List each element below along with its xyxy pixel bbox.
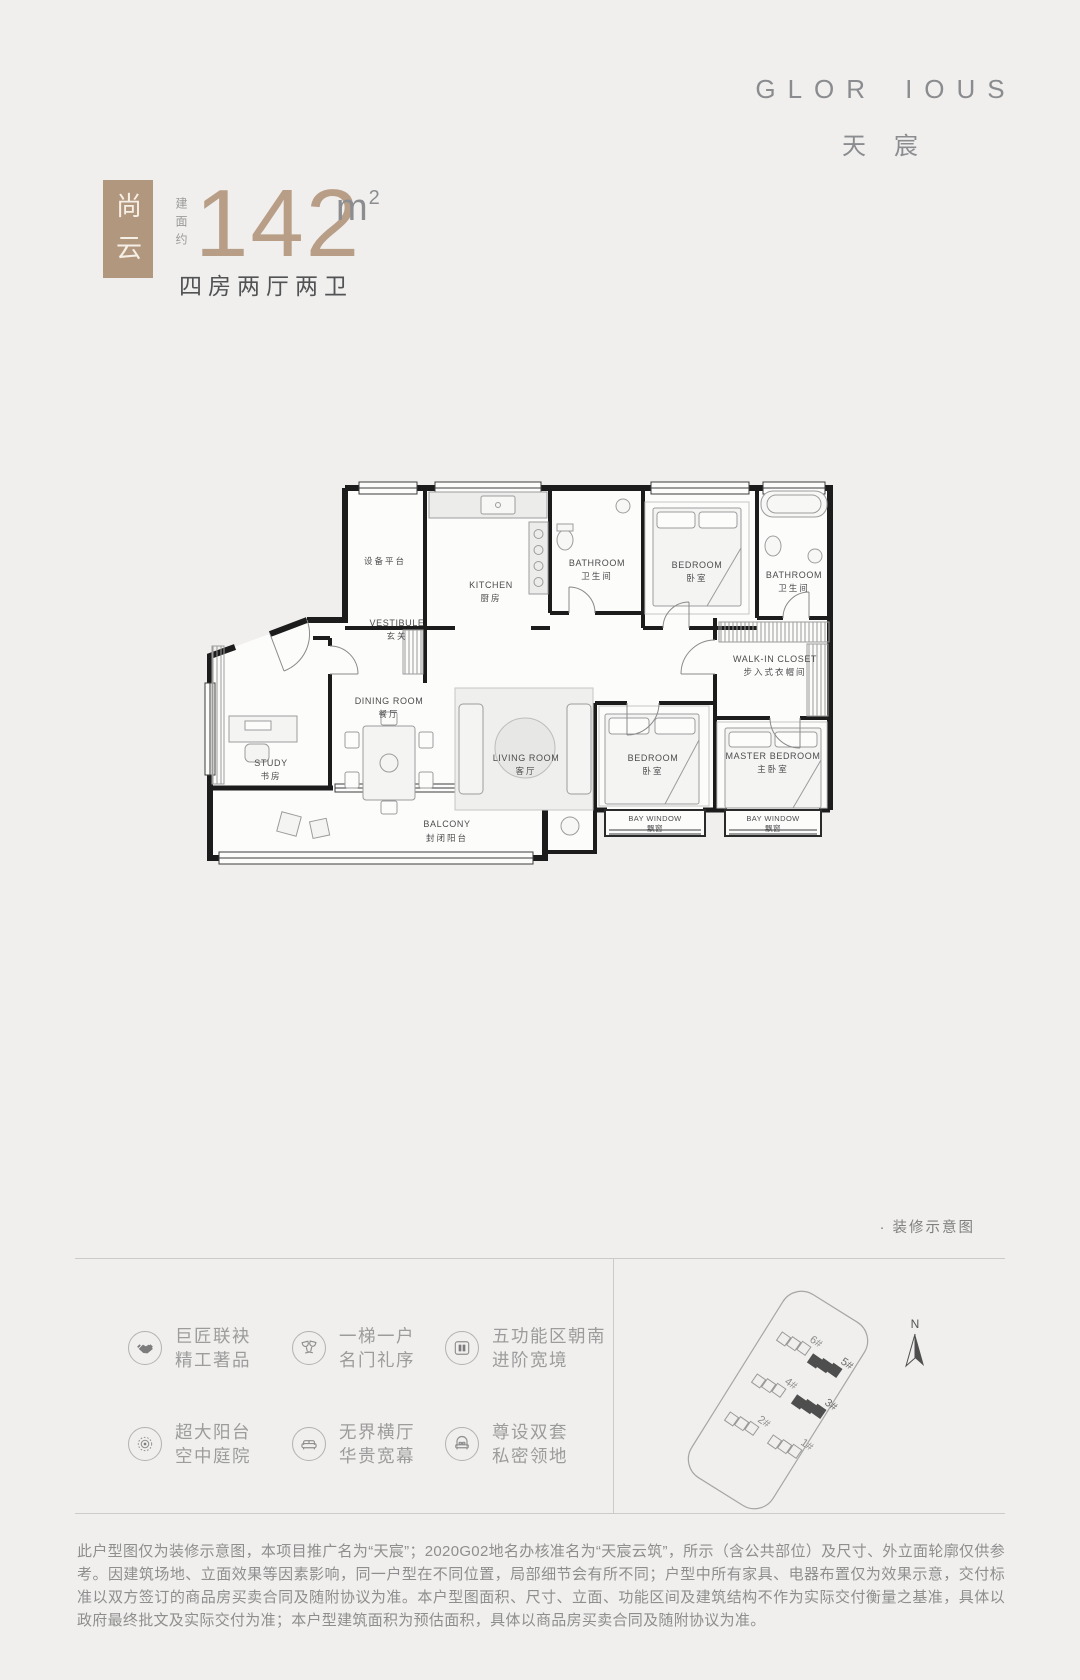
- decoration-note: · 装修示意图: [880, 1216, 975, 1237]
- feature-text: 五功能区朝南 进阶宽境: [492, 1324, 606, 1372]
- room-label-bedroom-north-en: BEDROOM: [672, 560, 723, 570]
- poster-page: GLOR IOUS 天宸 尚云 建面约 142 m2 四房两厅两卫: [0, 0, 1080, 1680]
- divider-vertical: [613, 1259, 614, 1513]
- room-label-living-en: LIVING ROOM: [493, 753, 560, 763]
- feature-one-elevator: 一梯一户 名门礼序: [292, 1324, 415, 1372]
- feature-text: 巨匠联袂 精工著品: [175, 1324, 251, 1372]
- feature-south-facing: 五功能区朝南 进阶宽境: [445, 1324, 606, 1372]
- unit-badge: 尚云: [103, 180, 153, 278]
- feature-craftsmanship: 巨匠联袂 精工著品: [128, 1324, 251, 1372]
- room-label-bathroom2-en: BATHROOM: [766, 570, 822, 580]
- room-label-bay1-en: BAY WINDOW: [628, 814, 682, 823]
- room-label-vestibule-en: VESTIBULE: [370, 618, 425, 628]
- room-label-bathroom1-en: BATHROOM: [569, 558, 625, 568]
- layout-description: 四房两厅两卫: [179, 267, 353, 301]
- divider-top: [75, 1258, 1005, 1259]
- room-label-balcony-en: BALCONY: [423, 819, 470, 829]
- site-building-3: 3#: [792, 1381, 840, 1426]
- floor-plan: 设备平台 VESTIBULE 玄关 KITCHEN 厨房 BATHROOM 卫生…: [195, 478, 835, 873]
- brand-logo: GLOR IOUS 天宸: [750, 66, 1010, 161]
- site-building-4: 4#: [752, 1360, 800, 1405]
- feature-text: 一梯一户 名门礼序: [339, 1324, 415, 1372]
- room-label-dining-en: DINING ROOM: [355, 696, 424, 706]
- feature-text: 超大阳台 空中庭院: [175, 1420, 251, 1468]
- site-building-1: 1#: [768, 1421, 816, 1466]
- sofa-icon: [292, 1427, 326, 1461]
- handshake-icon: [128, 1331, 162, 1365]
- room-label-bathroom2-cn: 卫生间: [778, 583, 810, 593]
- site-boundary: [680, 1283, 876, 1512]
- room-label-vestibule-cn: 玄关: [386, 631, 407, 641]
- feature-text: 无界横厅 华贵宽幕: [339, 1420, 415, 1468]
- room-label-study-cn: 书房: [260, 771, 281, 781]
- room-label-equipment: 设备平台: [364, 556, 406, 566]
- site-building-6: 6#: [777, 1318, 825, 1363]
- room-label-bay1-cn: 飘窗: [647, 823, 663, 833]
- feature-text: 尊设双套 私密领地: [492, 1420, 568, 1468]
- room-label-living-cn: 客厅: [515, 766, 536, 776]
- brand-subtitle: 天宸: [750, 126, 1010, 161]
- site-building-2: 2#: [725, 1398, 773, 1443]
- room-label-bay2-cn: 飘窗: [765, 823, 781, 833]
- room-label-closet-en: WALK-IN CLOSET: [733, 654, 817, 664]
- room-label-bay2-en: BAY WINDOW: [746, 814, 800, 823]
- room-label-kitchen-cn: 厨房: [480, 593, 501, 603]
- svg-text:N: N: [911, 1317, 920, 1331]
- room-label-bathroom1-cn: 卫生间: [581, 571, 613, 581]
- goblet-icon: [292, 1331, 326, 1365]
- room-label-master-cn: 主卧室: [757, 764, 789, 774]
- room-label-bedroom-north-cn: 卧室: [686, 573, 707, 583]
- room-label-bedroom-south-cn: 卧室: [642, 766, 663, 776]
- feature-double-suite: 尊设双套 私密领地: [445, 1420, 568, 1468]
- room-label-master-en: MASTER BEDROOM: [726, 751, 821, 761]
- room-label-balcony-cn: 封闭阳台: [426, 833, 468, 843]
- bed-icon: [445, 1427, 479, 1461]
- site-plan: 6# 5# 4# 3# 2# 1# N: [630, 1262, 970, 1512]
- room-label-closet-cn: 步入式衣帽间: [743, 667, 806, 677]
- area-prefix: 建面约: [173, 197, 190, 251]
- room-label-dining-cn: 餐厅: [378, 709, 399, 719]
- brand-name-right: IOUS: [893, 74, 1017, 105]
- unit-badge-label: 尚云: [110, 180, 147, 278]
- area-unit: m2: [336, 187, 379, 230]
- room-label-kitchen-en: KITCHEN: [469, 580, 513, 590]
- double-door-icon: [445, 1331, 479, 1365]
- room-label-study-en: STUDY: [254, 758, 288, 768]
- divider-bottom: [75, 1513, 1005, 1514]
- compass-north: N: [906, 1317, 924, 1366]
- room-label-bedroom-south-en: BEDROOM: [628, 753, 679, 763]
- feature-balcony: 超大阳台 空中庭院: [128, 1420, 251, 1468]
- brand-name: GLOR IOUS: [750, 66, 1010, 112]
- brand-name-left: GLOR: [743, 74, 877, 105]
- area-unit-superscript: 2: [369, 187, 380, 209]
- disclaimer-text: 此户型图仅为装修示意图，本项目推广名为“天宸”；2020G02地名办核准名为“天…: [77, 1540, 1005, 1632]
- sun-icon: [128, 1427, 162, 1461]
- feature-living-hall: 无界横厅 华贵宽幕: [292, 1420, 415, 1468]
